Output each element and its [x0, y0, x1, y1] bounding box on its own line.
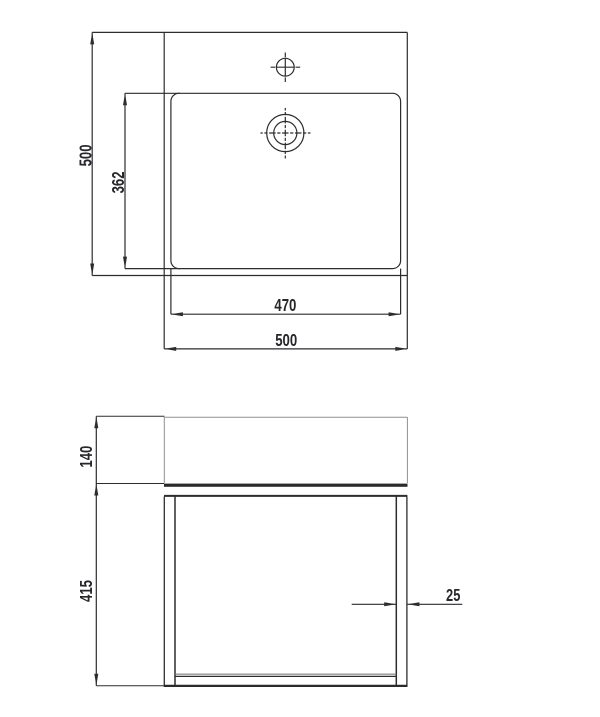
svg-text:140: 140 — [76, 446, 96, 468]
svg-text:415: 415 — [76, 580, 96, 602]
svg-text:362: 362 — [108, 171, 128, 193]
svg-text:470: 470 — [274, 295, 296, 315]
svg-text:500: 500 — [275, 330, 297, 350]
svg-text:500: 500 — [75, 144, 95, 166]
svg-text:25: 25 — [446, 585, 461, 605]
